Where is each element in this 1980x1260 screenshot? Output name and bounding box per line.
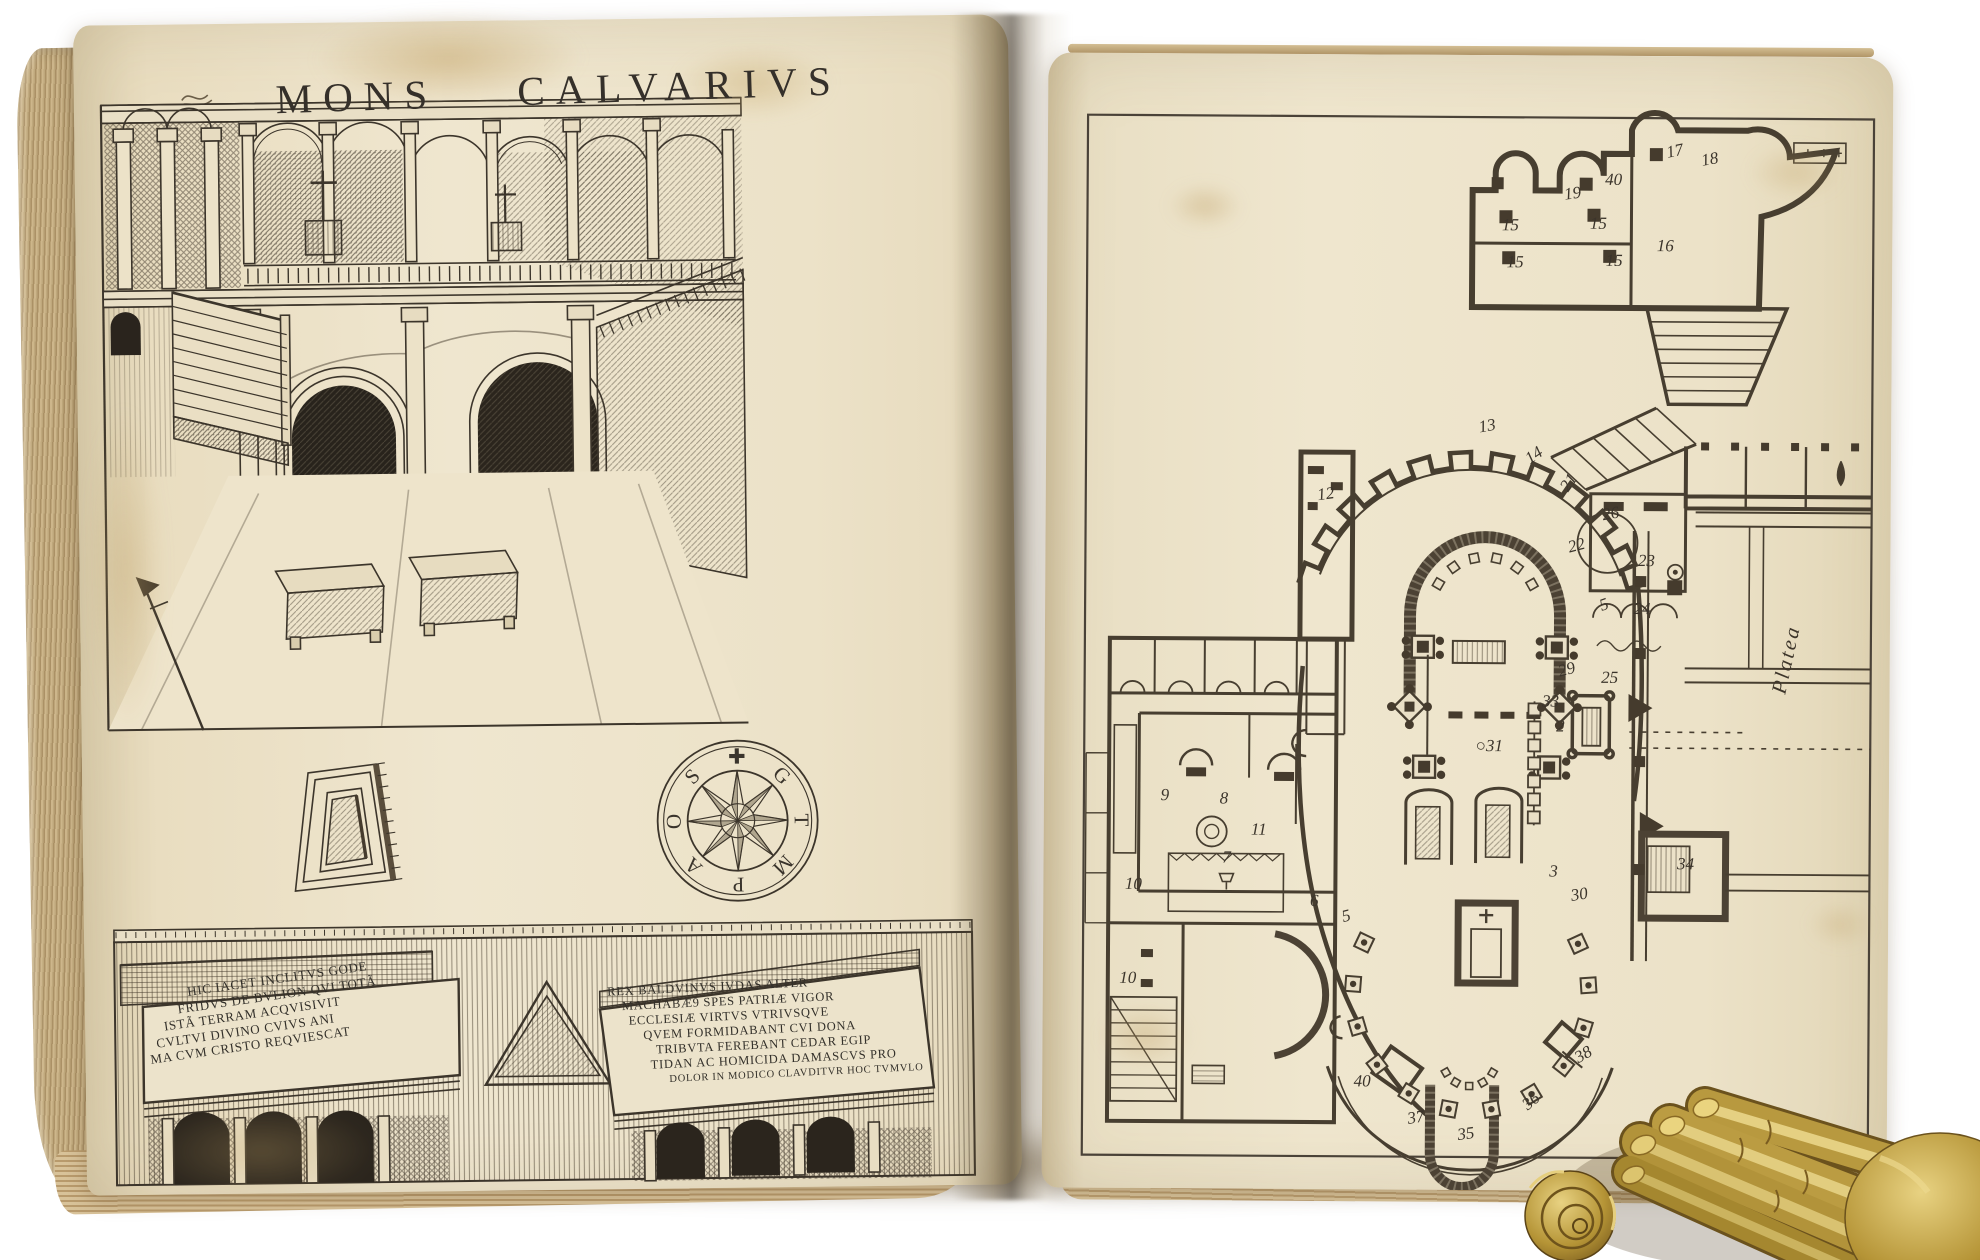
right-page: Platea 171840191515161515131421122622235… [1042,52,1894,1192]
plan-number: 23 [1638,551,1655,571]
left-page: ✚ G T M P A O S [73,14,1022,1195]
plan-number: 15 [1507,252,1524,272]
plan-number: 19 [1563,183,1583,205]
plan-number: 10 [1125,874,1142,894]
plan-number: 11 [1251,820,1267,840]
plan-number: 15 [1590,214,1607,234]
plan-number: 12 [1316,483,1336,505]
plan-number: 18 [1700,148,1720,171]
plan-number: 15 [1502,215,1519,235]
plan-number: 5 [1340,906,1353,927]
compass-letter: T [790,813,814,826]
plan-number: 34 [1677,854,1694,874]
courtyard [105,470,748,732]
plan-number: 37 [1406,1106,1426,1129]
plan-number: 22 [1566,534,1588,558]
plan-number: 33 [1542,691,1559,711]
plan-number: 14 [1521,442,1546,468]
plan-number: 6 [1310,891,1319,911]
plan-number: 3 [1549,862,1558,882]
plan-number: 8 [1220,788,1229,808]
plan-number: 9 [1161,785,1170,805]
plan-number: 24 [1634,599,1651,619]
plan-number: 2 [1556,717,1565,737]
plan-number: 35 [1456,1123,1476,1145]
left-colonnade [104,108,241,290]
plan-number: 16 [1657,236,1674,256]
book-gutter-shadow [952,14,1072,1200]
engraving-scene [101,98,750,732]
plan-number: 26 [1601,503,1621,526]
plan-number: 17 [1665,140,1686,163]
volute-base [1525,1171,1615,1260]
compass-letter: O [662,814,686,829]
plan-number: 15 [1606,251,1623,271]
plan-number: 10 [1119,968,1136,988]
plan-number: 30 [1569,883,1589,906]
photo-stage: ✚ G T M P A O S [0,0,1980,1260]
compass-letter: S [679,764,704,789]
compass-rose: ✚ G T M P A O S [657,740,819,902]
baldwin-inscription: REX BALDVINVS IVDAS ALTER MACHABÆ9 SPES … [607,970,924,1090]
plan-number: 21 [1556,470,1582,495]
plan-number: 25 [1601,668,1618,688]
plan-number: 7 [1222,848,1231,868]
plan-number: ○31 [1476,736,1503,756]
plan-number: 40 [1354,1071,1371,1091]
plan-number: 29 [1556,658,1578,682]
plan-number: 40 [1605,170,1622,190]
plan-numbers-layer: 1718401915151615151314211226222352429253… [1042,52,1894,1192]
tomb-plan [294,763,402,892]
brass-hand-stand [1500,1078,1980,1260]
plan-number: 38 [1571,1042,1596,1068]
compass-letter: P [732,873,744,897]
compass-letter: ✚ [728,745,746,769]
plan-number: 13 [1477,415,1497,438]
plan-number: 5 [1597,594,1612,616]
